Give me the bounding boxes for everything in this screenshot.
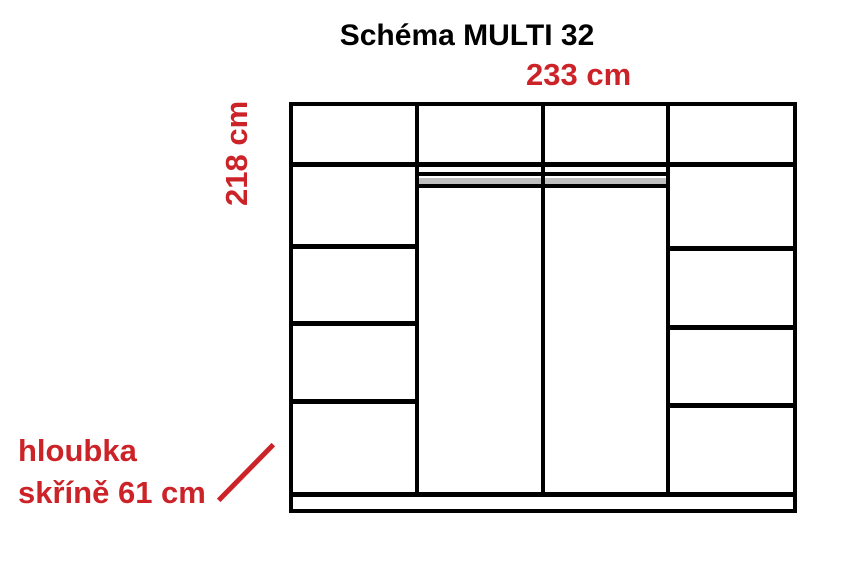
plinth-line — [293, 492, 793, 497]
left-shelf-3 — [293, 399, 415, 404]
wardrobe-outline — [289, 102, 797, 513]
vertical-divider-center — [541, 106, 545, 492]
depth-leader-line — [217, 443, 275, 502]
right-shelf-1 — [670, 246, 793, 251]
depth-label-line1: hloubka — [18, 430, 206, 472]
left-shelf-1 — [293, 244, 415, 249]
diagram-title: Schéma MULTI 32 — [317, 19, 617, 53]
vertical-divider-left — [415, 106, 419, 492]
schema-page: Schéma MULTI 32 233 cm 218 cm hloubka sk… — [0, 0, 842, 582]
left-shelf-2 — [293, 321, 415, 326]
right-shelf-3 — [670, 403, 793, 408]
height-dimension-label: 218 cm — [221, 102, 253, 206]
vertical-divider-right — [666, 106, 670, 492]
depth-label-line2: skříně 61 cm — [18, 472, 206, 514]
right-shelf-2 — [670, 325, 793, 330]
width-dimension-label: 233 cm — [526, 57, 631, 93]
depth-dimension-label: hloubka skříně 61 cm — [18, 430, 206, 514]
